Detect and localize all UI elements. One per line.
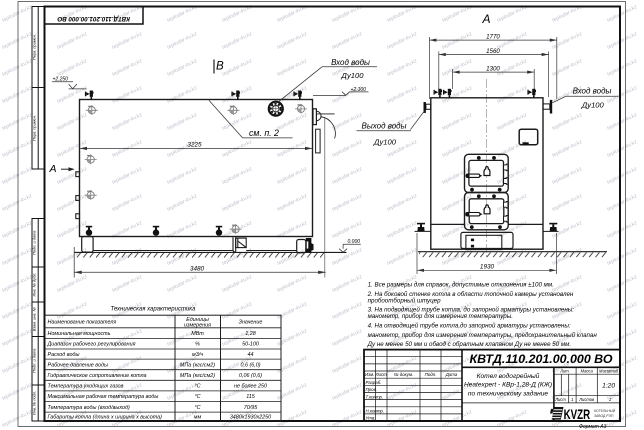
svg-text:А: А [482,12,491,26]
svg-text:Лит.: Лит. [559,369,570,374]
svg-text:50-100: 50-100 [242,342,259,348]
svg-text:Вход воды: Вход воды [573,87,612,96]
svg-text:1300: 1300 [486,65,500,72]
svg-text:манометр, прибор для измерения: манометр, прибор для измерения температу… [368,332,598,339]
svg-text:1,28: 1,28 [245,331,256,337]
svg-text:не более 250: не более 250 [234,384,267,390]
svg-text:Пров.: Пров. [366,387,378,392]
svg-text:Heatexpert - КВр-1,28-Д (КЖ): Heatexpert - КВр-1,28-Д (КЖ) [464,382,552,389]
svg-text:Вход воды: Вход воды [331,58,370,67]
svg-text:1930: 1930 [480,264,495,271]
svg-text:Масштаб: Масштаб [599,369,619,374]
svg-text:Ду не менее 50 мм и обвод с о: Ду не менее 50 мм и обвод с обратным кла… [367,341,571,348]
svg-text:°С: °С [194,394,200,400]
svg-text:Выход воды: Выход воды [362,122,407,131]
svg-text:см. п. 2: см. п. 2 [249,128,279,138]
svg-text:1560: 1560 [486,48,500,55]
svg-text:КОТЕЛЬНЫЙ: КОТЕЛЬНЫЙ [594,409,616,413]
svg-text:ЗАВОД РЭП: ЗАВОД РЭП [594,414,614,418]
svg-text:мм: мм [194,415,202,421]
svg-text:Перв. примен.: Перв. примен. [32,34,37,60]
svg-text:Габариты котла (длина х ширина: Габариты котла (длина х ширина х высота) [48,415,163,421]
svg-text:Температура уходящих газов: Температура уходящих газов [48,384,124,390]
svg-text:Гидравлическое сопротивление к: Гидравлическое сопротивление котла [48,373,147,379]
svg-text:Дата: Дата [445,372,458,377]
svg-text:4. На отводящей трубе котла,д: 4. На отводящей трубе котла,до запорной … [368,322,571,329]
svg-text:КВТД.110.201.00.000 ВО: КВТД.110.201.00.000 ВО [470,352,613,366]
svg-text:Номинальная мощность: Номинальная мощность [48,331,111,337]
svg-text:115: 115 [246,394,256,400]
svg-text:А: А [49,163,57,175]
svg-text:0,6 (6,0): 0,6 (6,0) [240,362,260,368]
svg-text:Инв. № дубл.: Инв. № дубл. [32,273,37,297]
svg-text:измерения: измерения [184,323,211,329]
svg-text:Перв. примен.: Перв. примен. [32,115,37,141]
svg-text:Техническая характеристика: Техническая характеристика [111,307,197,313]
svg-text:Подп. и дата: Подп. и дата [32,348,37,373]
svg-text:Диапазон рабочего регулировани: Диапазон рабочего регулирования [47,342,136,348]
svg-text:44: 44 [248,352,254,358]
svg-text:°С: °С [194,384,200,390]
svg-text:Листов: Листов [578,397,595,402]
svg-text:°С: °С [194,405,200,411]
svg-text:Ду100: Ду100 [341,71,365,80]
svg-text:МПа (кгс/см2): МПа (кгс/см2) [180,373,215,379]
svg-text:пробоотборный штуцер: пробоотборный штуцер [368,297,442,304]
svg-text:Изм.: Изм. [365,372,374,377]
svg-text:0.000: 0.000 [348,239,361,245]
svg-text:Подп. и дата: Подп. и дата [32,230,37,255]
svg-text:В: В [216,60,224,72]
svg-text:Инв. № подл.: Инв. № подл. [32,391,37,415]
svg-text:3480: 3480 [190,266,205,273]
svg-text:1. Все размеры для справок, д: 1. Все размеры для справок, допустимые о… [368,282,554,289]
svg-text:Лист: Лист [375,372,388,377]
svg-text:%: % [195,342,200,348]
svg-text:Рабочее давление воды: Рабочее давление воды [48,362,108,368]
svg-text:Расход воды: Расход воды [48,352,80,358]
svg-text:1:20: 1:20 [602,383,615,390]
svg-text:Ду100: Ду100 [373,138,397,147]
svg-text:Разраб.: Разраб. [366,380,382,385]
svg-text:Подп.: Подп. [425,372,437,377]
svg-text:Наименование показателя: Наименование показателя [48,320,117,326]
svg-text:Ду100: Ду100 [581,101,605,110]
svg-text:по техническому задание: по техническому задание [468,389,549,397]
svg-text:КВТД.110.201.00.000 ВО: КВТД.110.201.00.000 ВО [57,15,130,22]
svg-text:Т.контр.: Т.контр. [366,394,384,399]
svg-text:0,06 (0,6): 0,06 (0,6) [239,373,262,379]
svg-text:Котел водогрейный: Котел водогрейный [477,372,540,380]
svg-text:Масса: Масса [581,369,594,374]
svg-text:Н.контр.: Н.контр. [366,409,385,414]
svg-text:+2.100: +2.100 [351,87,367,93]
svg-text:1770: 1770 [486,33,500,40]
svg-text:Значение: Значение [239,320,263,326]
svg-text:Лист: Лист [554,397,566,402]
svg-text:Температура воды (вход/выход): Температура воды (вход/выход) [48,405,131,411]
svg-text:1: 1 [571,397,573,402]
svg-text:№ докум.: № докум. [394,372,413,377]
svg-text:3480х1930х2250: 3480х1930х2250 [230,415,271,421]
svg-text:KVZR: KVZR [564,407,591,422]
svg-text:МВт: МВт [191,331,204,337]
svg-text:70/95: 70/95 [244,405,258,411]
svg-text:3225: 3225 [187,142,202,149]
svg-text:Взам. инв. №: Взам. инв. № [32,306,37,331]
svg-text:+2.250: +2.250 [53,77,69,83]
svg-text:Утв.: Утв. [366,416,376,421]
svg-text:манометр, прибор для измерения: манометр, прибор для измерения температу… [368,313,513,320]
svg-text:Максимальная рабочая температу: Максимальная рабочая температура воды [48,394,159,400]
svg-text:МПа (кгс/см2): МПа (кгс/см2) [180,362,215,368]
svg-text:Формат А3: Формат А3 [579,424,607,430]
svg-text:м3/ч: м3/ч [192,352,203,358]
